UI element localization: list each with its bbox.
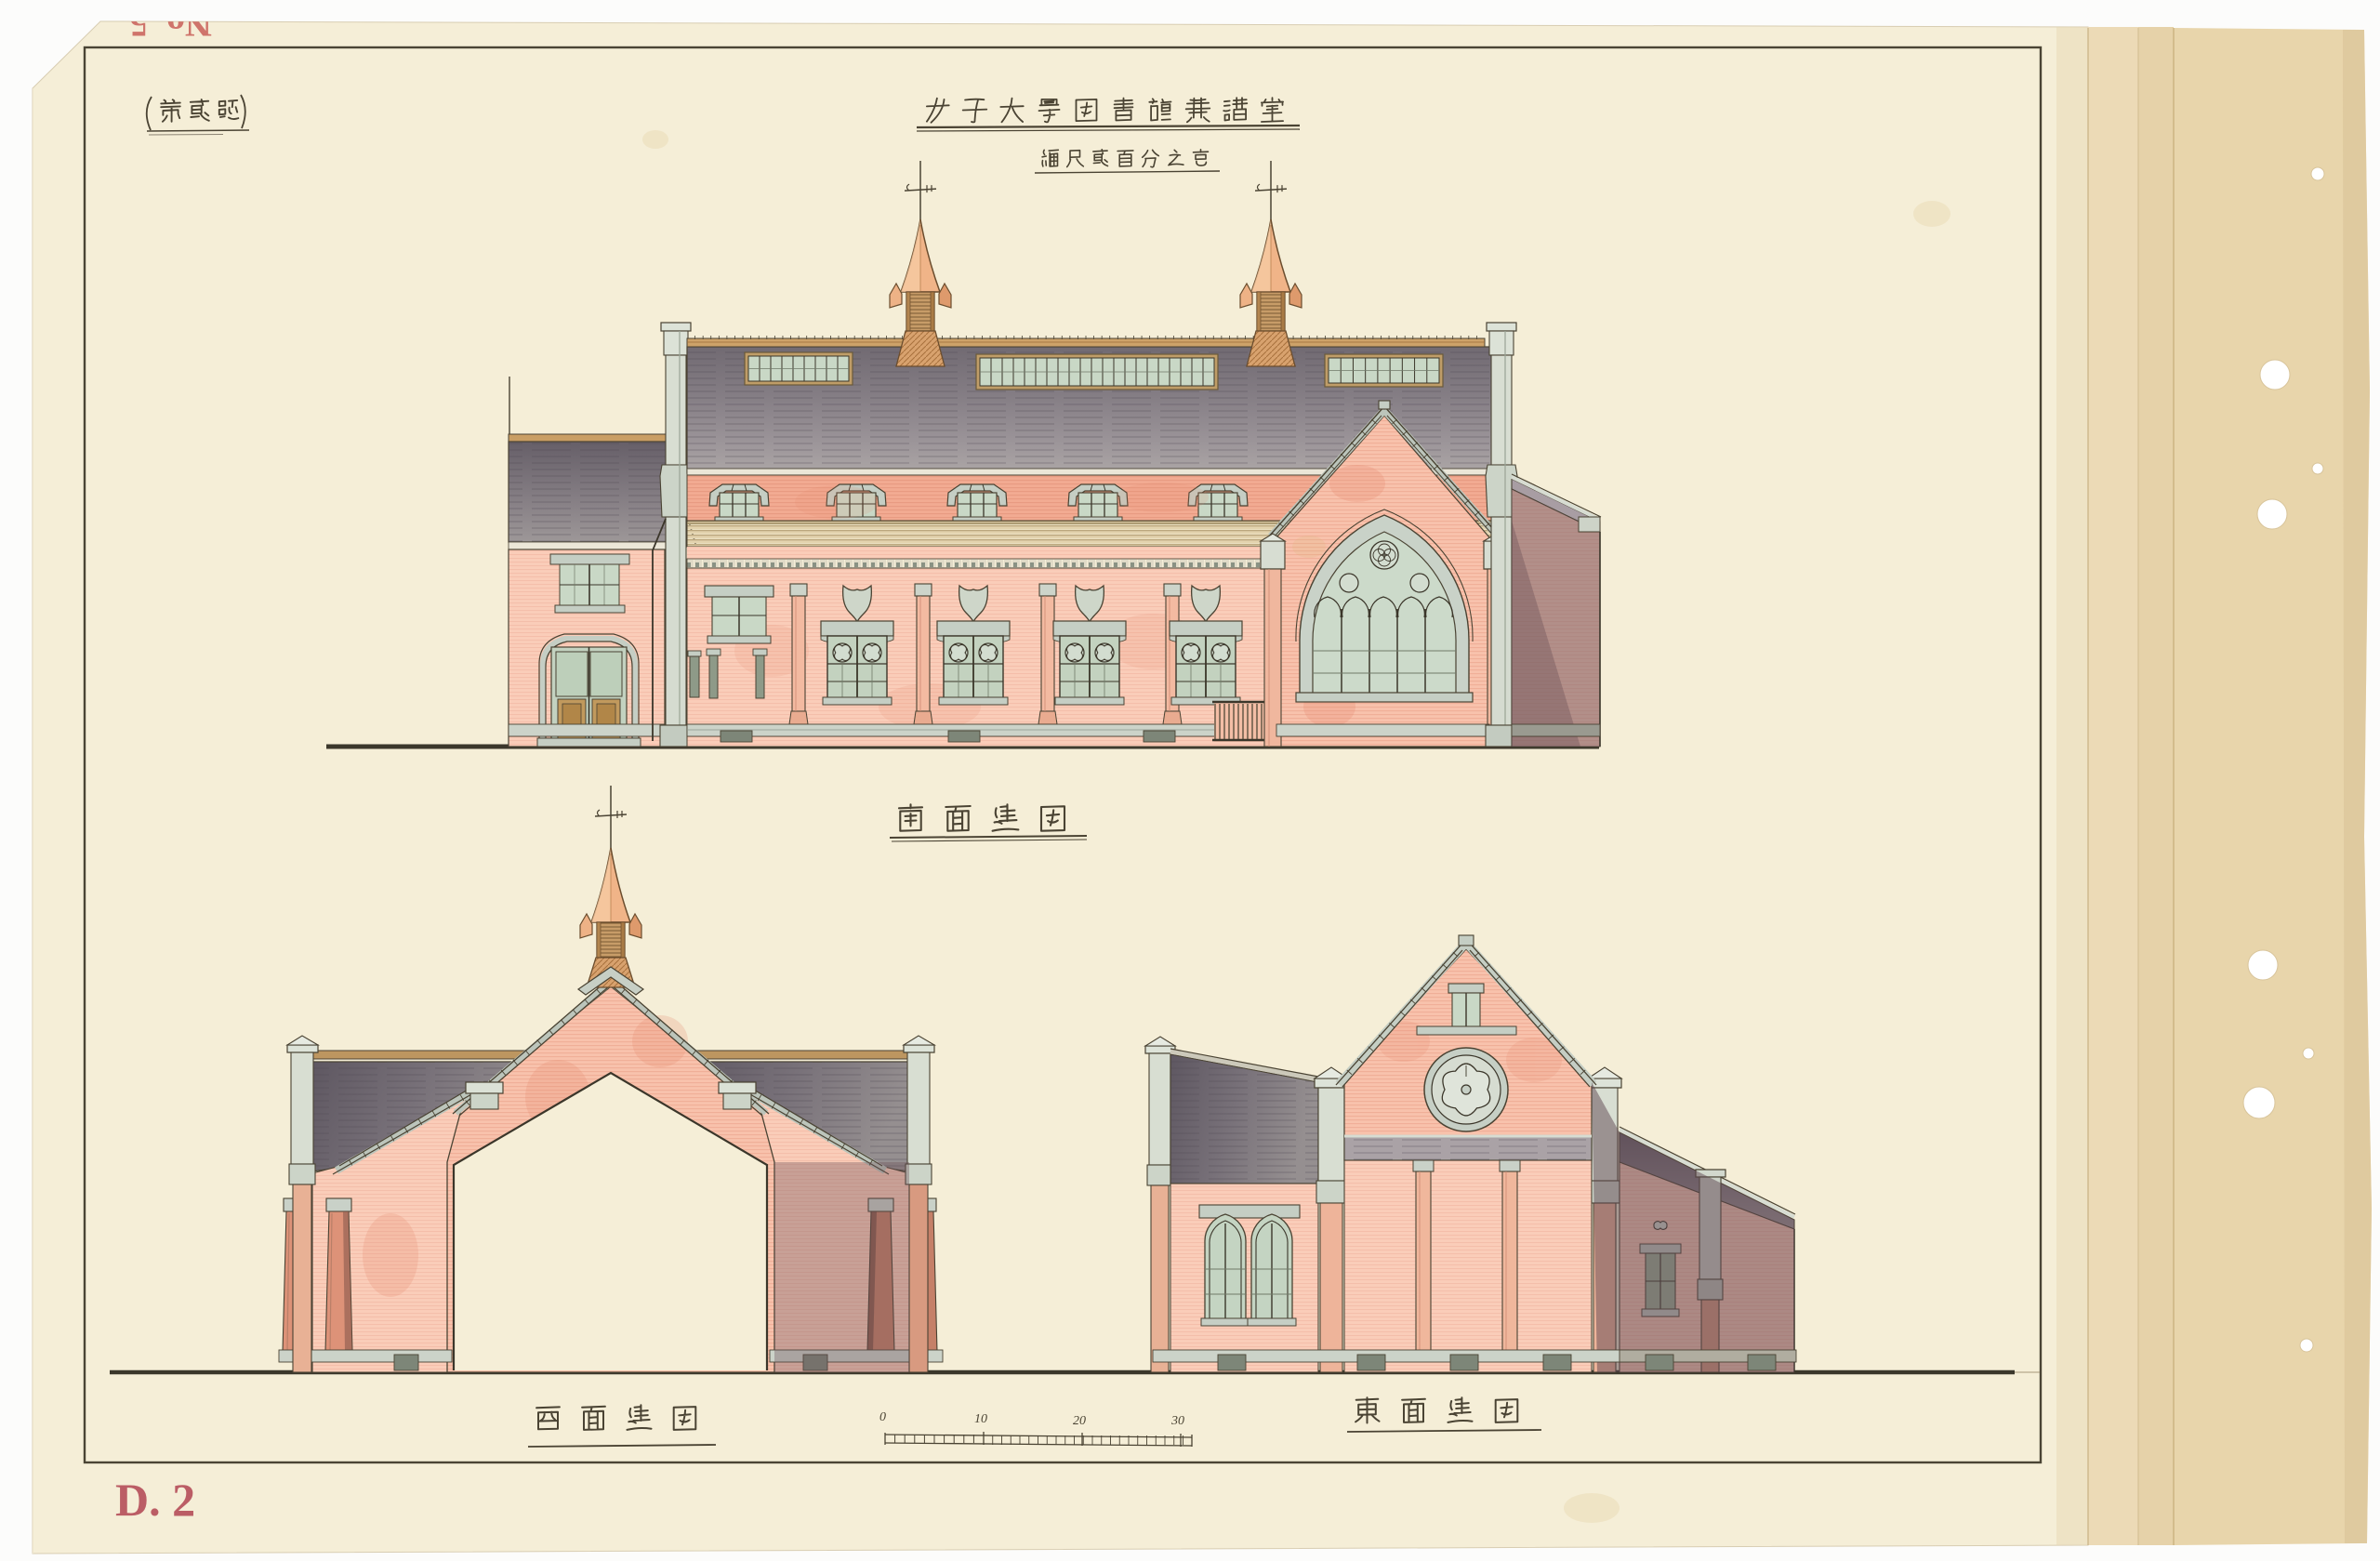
svg-text:D. 2: D. 2 — [115, 1474, 195, 1526]
svg-text:10: 10 — [974, 1412, 987, 1426]
svg-text:20: 20 — [1073, 1414, 1086, 1428]
svg-text:30: 30 — [1170, 1414, 1184, 1428]
svg-text:0: 0 — [879, 1410, 886, 1424]
